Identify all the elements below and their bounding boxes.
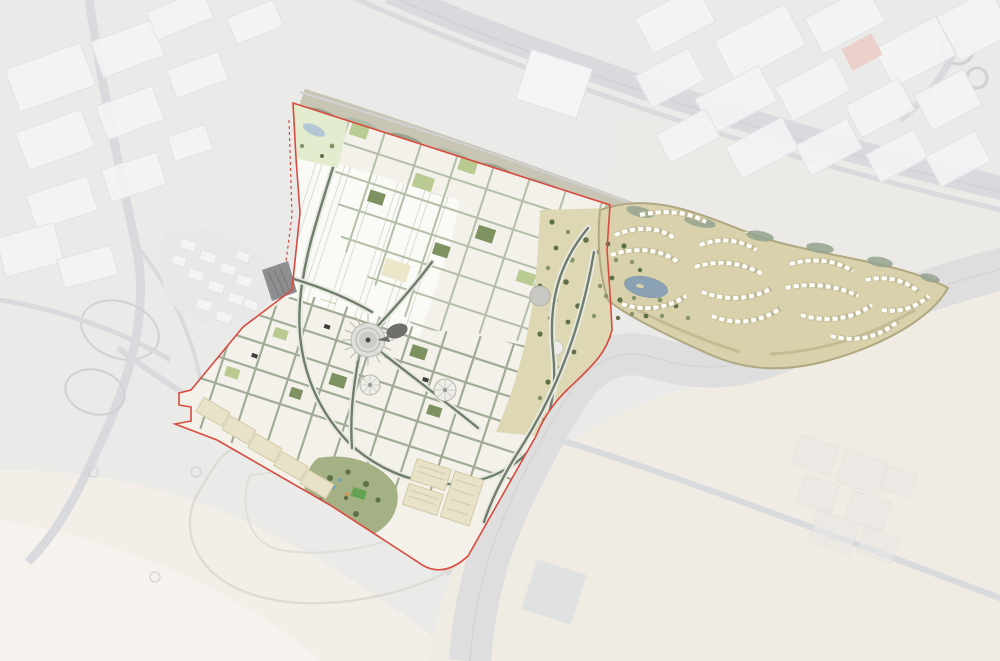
masterplan-screenshot [0,0,1000,661]
play-area-blue-2 [338,478,342,482]
grey-dome-pavilion [530,286,550,306]
masterplan-map [0,0,1000,661]
dome-pavilion-west [360,375,380,395]
plaza-center [366,338,371,343]
dome-pavilion-east [434,379,456,401]
play-area-orange [345,492,349,496]
